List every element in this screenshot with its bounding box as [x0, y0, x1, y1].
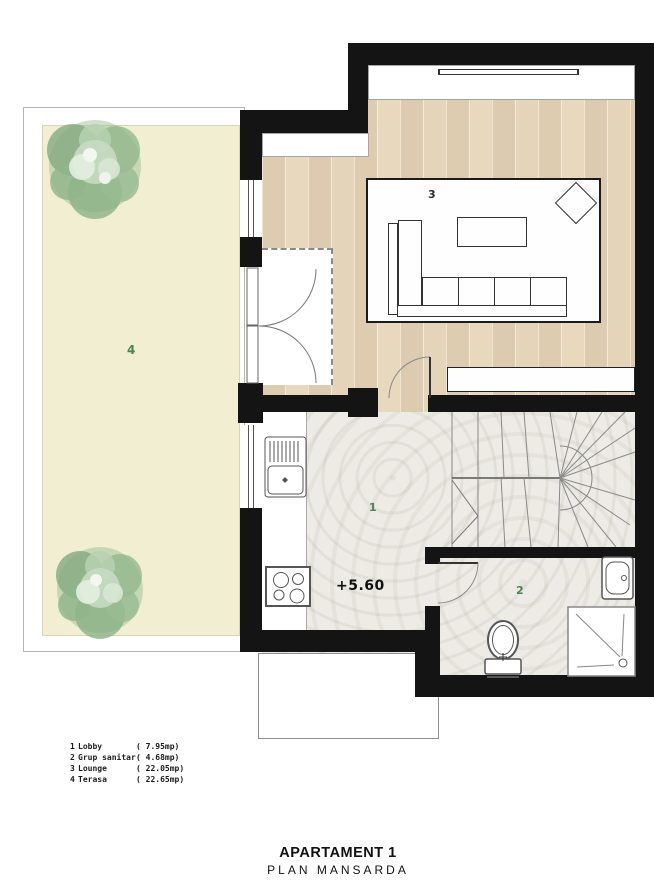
window-dormer — [438, 69, 579, 75]
window-terrace — [240, 180, 262, 237]
sofa-cushion — [423, 278, 458, 305]
window-kitchen — [240, 425, 262, 508]
sofa-cushion — [494, 278, 530, 305]
wall-door-pier — [348, 388, 378, 417]
floor-plan: 3 1 2 4 +5.60 1Lobby( 7.95mp) 2Grup sani… — [0, 0, 654, 885]
wall-lounge-lobby — [263, 395, 350, 412]
legend-room-number: 4 — [70, 774, 78, 785]
terrace-floor — [42, 125, 240, 636]
legend-row: 2Grup sanitar( 4.68mp) — [70, 752, 184, 763]
legend-room-area: ( 7.95mp) — [136, 742, 179, 751]
sofa-bottom-rail — [397, 305, 567, 317]
window-glazing — [248, 425, 254, 508]
title-block: APARTAMENT 1 PLAN MANSARDA — [213, 845, 463, 877]
wall-lobby-bottom — [240, 630, 430, 652]
legend-room-area: ( 22.65mp) — [136, 775, 184, 784]
wall-stairs-bathroom — [437, 547, 654, 558]
room-label-terrace: 4 — [127, 343, 135, 357]
room-label-lobby: 1 — [369, 501, 377, 514]
legend-room-area: ( 22.05mp) — [136, 764, 184, 773]
wall-bathroom-bottom — [415, 675, 654, 697]
wall-top — [348, 43, 654, 65]
wall-pier — [240, 237, 262, 267]
lower-level-outline — [258, 653, 439, 739]
wall-pier — [238, 383, 263, 423]
dormer-niche-left — [262, 133, 369, 157]
legend-room-area: ( 4.68mp) — [136, 753, 179, 762]
kitchen-counter — [256, 412, 307, 633]
room-label-lounge: 3 — [428, 188, 436, 201]
legend-room-name: Grup sanitar — [78, 752, 136, 763]
plan-subtitle: PLAN MANSARDA — [213, 863, 463, 877]
legend-room-number: 2 — [70, 752, 78, 763]
legend-room-number: 1 — [70, 741, 78, 752]
sofa-back-rail — [388, 223, 398, 315]
sofa-cushion — [458, 278, 494, 305]
wall-right — [635, 43, 654, 697]
wall-step-horizontal — [240, 110, 368, 133]
coffee-table — [457, 217, 527, 247]
wall-lounge-lobby-right — [428, 395, 654, 412]
sofa-left-section — [398, 220, 422, 306]
plan-title: APARTAMENT 1 — [213, 845, 463, 861]
wall-left-upper — [240, 133, 262, 180]
room-label-bathroom: 2 — [516, 584, 524, 597]
sofa-seat-cushions — [422, 277, 567, 306]
level-marker: +5.60 — [336, 578, 416, 594]
legend-room-name: Lobby — [78, 741, 136, 752]
legend-room-name: Lounge — [78, 763, 136, 774]
legend-row: 1Lobby( 7.95mp) — [70, 741, 184, 752]
sideboard — [447, 367, 635, 392]
wall-bath-pier-bottom — [425, 606, 440, 632]
room-legend: 1Lobby( 7.95mp) 2Grup sanitar( 4.68mp) 3… — [70, 741, 184, 785]
legend-row: 3Lounge( 22.05mp) — [70, 763, 184, 774]
legend-room-name: Terasa — [78, 774, 136, 785]
low-ceiling-zone — [262, 248, 333, 385]
window-glazing — [248, 180, 254, 237]
legend-row: 4Terasa( 22.65mp) — [70, 774, 184, 785]
sofa-cushion — [530, 278, 566, 305]
wall-bath-pier-top — [425, 547, 440, 564]
legend-room-number: 3 — [70, 763, 78, 774]
